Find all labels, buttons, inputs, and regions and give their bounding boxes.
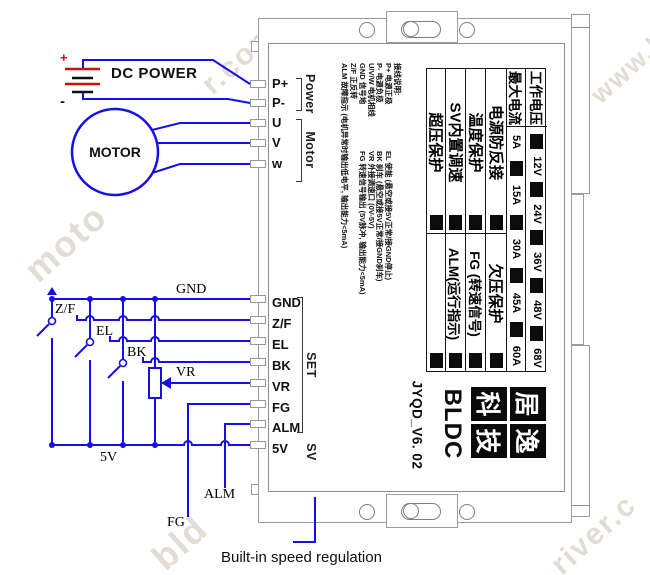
el-wire <box>110 336 250 341</box>
watermark: moto <box>16 195 115 290</box>
mark-square <box>430 215 443 230</box>
spec-col-reverse: 电源防反接 欠压保护 <box>485 69 506 371</box>
notes-row: Z/F 正反转 <box>348 63 357 371</box>
bottom-caption: Built-in speed regulation <box>221 549 382 566</box>
mark-square <box>490 215 503 230</box>
bracket-power-group <box>296 78 302 111</box>
mark-square <box>430 353 443 368</box>
zf-switch-blade <box>37 324 49 336</box>
switch-pivots <box>49 318 127 367</box>
left-notch-bottom <box>251 484 259 495</box>
spec-col-overvoltage: 超压保护 <box>427 69 445 371</box>
mounting-hole <box>359 504 375 520</box>
bk-switch-blade <box>108 366 120 378</box>
bk-switch-label: BK <box>127 345 146 361</box>
board-edge-mid-right <box>571 194 584 345</box>
pad-p-plus <box>250 80 266 88</box>
mark-square <box>510 161 523 176</box>
mark-square <box>510 268 523 283</box>
el-switch-label: EL <box>96 324 113 340</box>
pin-label-p-minus: P- <box>272 95 285 111</box>
flange-cap-line <box>571 505 590 506</box>
vr-wiper-arrow <box>161 377 171 389</box>
pad-w <box>250 160 266 168</box>
brand-logo: 居 逸 科 技 <box>475 387 546 458</box>
group-label-power: Power <box>303 74 317 114</box>
mark-square <box>510 215 523 230</box>
group-label-sv: SV <box>304 443 318 461</box>
fg-wire-label: FG <box>167 515 185 531</box>
notes-row: ALM 故障指示 (电机异常时输出低电平, 输出能力<5mA) <box>339 63 348 371</box>
mark-square <box>530 278 543 293</box>
mark-square <box>530 230 543 245</box>
slot-hole-bottom <box>403 503 419 519</box>
pin-label-p-plus: P+ <box>272 76 288 92</box>
zf-wire <box>77 315 250 320</box>
mark-square <box>449 215 462 230</box>
notes-row: GND 信号地FG 转速信号输出 (5V脉冲, 输出能力<5mA) <box>357 63 366 371</box>
mark-square <box>449 353 462 368</box>
group-label-set: SET <box>304 352 318 378</box>
gnd-bus-label: GND <box>176 282 206 298</box>
spec-col-sv: SV内置调速 ALM(运行指示) <box>445 69 465 371</box>
series-label: BLDC <box>438 389 466 460</box>
group-label-motor: Motor <box>303 131 317 168</box>
mark-square <box>530 134 543 149</box>
flange-cap-line <box>571 27 590 28</box>
slot-hole-top <box>403 21 419 37</box>
alm-wire-label: ALM <box>204 487 235 503</box>
battery-minus-sign: - <box>60 93 65 110</box>
board-flange-bottom-right <box>571 345 590 517</box>
pad-v <box>250 139 266 147</box>
mark-square <box>510 322 523 337</box>
5v-bus-label: 5V <box>100 450 117 466</box>
mounting-hole <box>459 504 475 520</box>
gnd-arrow <box>47 287 57 295</box>
model-number: JYQD_V6. 02 <box>410 381 425 470</box>
pin-label-w: w <box>272 156 282 172</box>
mounting-hole <box>459 22 475 38</box>
spec-table: 超压保护 SV内置调速 ALM(运行指示) 温度保护 FG (转速信号) 电源防… <box>426 68 546 372</box>
zf-switch-label: Z/F <box>55 302 75 318</box>
notes-row: P+ 电源正极EL 使能 (悬空或接5V正常/接GND停止) <box>383 63 392 371</box>
battery-icon <box>65 69 100 92</box>
mark-square <box>530 182 543 197</box>
pin-label-u: U <box>272 115 281 131</box>
pin-label-el: EL <box>272 337 289 353</box>
pad-gnd <box>250 295 266 303</box>
pin-label-bk: BK <box>272 358 291 374</box>
dc-power-label: DC POWER <box>111 65 198 82</box>
pad-vr <box>250 379 266 387</box>
pin-label-v: V <box>272 135 281 151</box>
bracket-set-group <box>297 297 303 433</box>
pin-label-alm: ALM <box>272 420 300 436</box>
wire-w <box>152 164 250 173</box>
pin-label-fg: FG <box>272 400 290 416</box>
spec-col-current: 最大电流 5A 15A 30A 45A 60A <box>506 69 525 371</box>
5v-bus <box>52 441 250 445</box>
notes-title: 接线说明: <box>392 63 401 371</box>
pad-u <box>250 119 266 127</box>
mark-square <box>469 215 482 230</box>
pin-label-5v: 5V <box>272 441 288 457</box>
pin-label-vr: VR <box>272 379 290 395</box>
el-switch-blade <box>75 345 87 357</box>
alm-wire <box>225 424 250 488</box>
bracket-motor-group <box>296 119 302 182</box>
pad-el <box>250 337 266 345</box>
wire-u <box>152 123 250 130</box>
mounting-hole <box>359 22 375 38</box>
pad-5v <box>250 441 266 449</box>
brand-char: 技 <box>471 424 507 458</box>
pad-alm <box>250 420 266 428</box>
pad-p-minus <box>250 99 266 107</box>
watermark: www.h <box>585 25 650 110</box>
pad-zf <box>250 316 266 324</box>
brand-char: 科 <box>471 387 507 421</box>
mark-square <box>469 353 482 368</box>
spec-col-voltage: 工作电压 12V 24V 36V 48V 68V <box>525 69 547 371</box>
notes-row: U/V/W 电机相线VR 外接调速口 (0V-5V) <box>366 63 375 371</box>
left-notch-top <box>251 41 259 52</box>
brand-char: 居 <box>510 387 546 421</box>
pad-bk <box>250 358 266 366</box>
battery-plus-sign: + <box>60 50 68 65</box>
wiring-notes: 接线说明: P+ 电源正极EL 使能 (悬空或接5V正常/接GND停止) P- … <box>339 63 401 371</box>
vr-potentiometer <box>149 368 161 398</box>
wiring-diagram: moto r.com www.h bld river.c P+ P- U V w… <box>0 0 650 575</box>
pin-label-zf: Z/F <box>272 316 292 332</box>
vr-pot-label: VR <box>176 365 195 381</box>
junction-dots <box>49 296 158 448</box>
board-flange-top-right <box>571 14 590 194</box>
pad-fg <box>250 400 266 408</box>
mark-square <box>490 353 503 368</box>
bk-wire <box>143 357 250 362</box>
spec-col-temp: 温度保护 FG (转速信号) <box>465 69 485 371</box>
motor-label: MOTOR <box>82 144 148 160</box>
brand-char: 逸 <box>510 424 546 458</box>
mark-square <box>530 326 543 341</box>
